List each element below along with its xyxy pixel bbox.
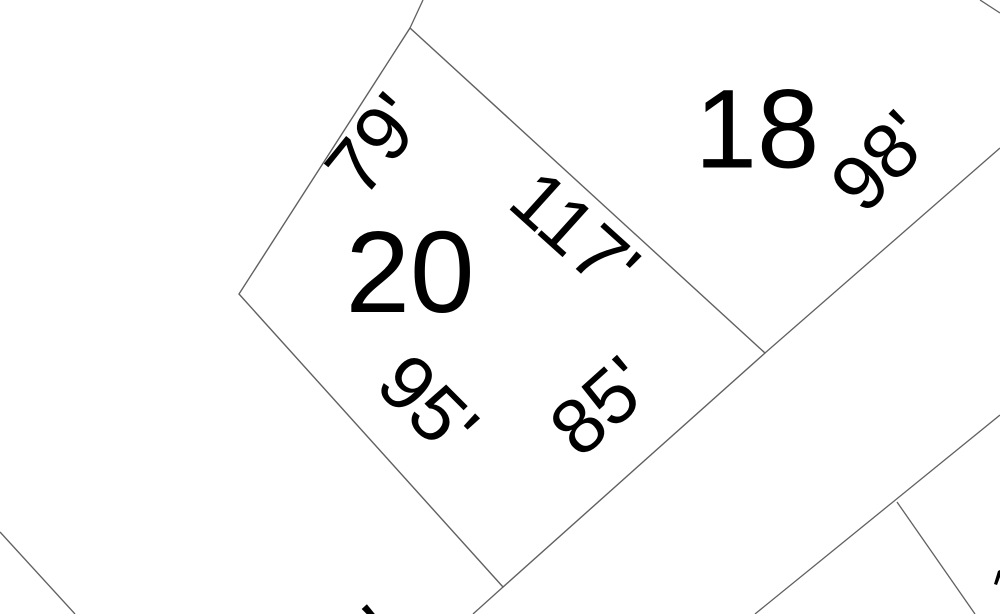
parcel-lot-20[interactable] — [239, 28, 765, 587]
parcel-map-canvas[interactable]: 20 18 79' 117' 95' 85' 98' 4' 9' — [0, 0, 1000, 614]
lot-line-bottom-right-branch — [897, 502, 975, 614]
partial-dimension-bottom-center: 9' — [315, 589, 417, 614]
lot-line-south-extension — [473, 587, 503, 614]
lot-18-number-label: 18 — [695, 67, 820, 192]
lot-18-dimension-southeast: 98' — [813, 94, 947, 228]
lot-line-north-extension — [410, 0, 423, 28]
lot-line-bottom-right-long — [755, 415, 1000, 614]
lot-20-number-label: 20 — [345, 207, 474, 337]
parcel-map-viewport[interactable]: 20 18 79' 117' 95' 85' 98' 4' 9' — [0, 0, 1000, 614]
lot-20-dimension-northwest: 79' — [308, 77, 440, 211]
partial-dimension-bottom-left: 4' — [0, 571, 28, 614]
parcel-boundary-lines — [0, 0, 1000, 614]
partial-text-mark-right-edge — [994, 570, 1000, 585]
lot-line-top-right-corner — [980, 0, 1000, 13]
lot-20-dimension-northeast: 117' — [494, 153, 656, 312]
lot-20-dimension-southeast: 85' — [533, 339, 667, 472]
